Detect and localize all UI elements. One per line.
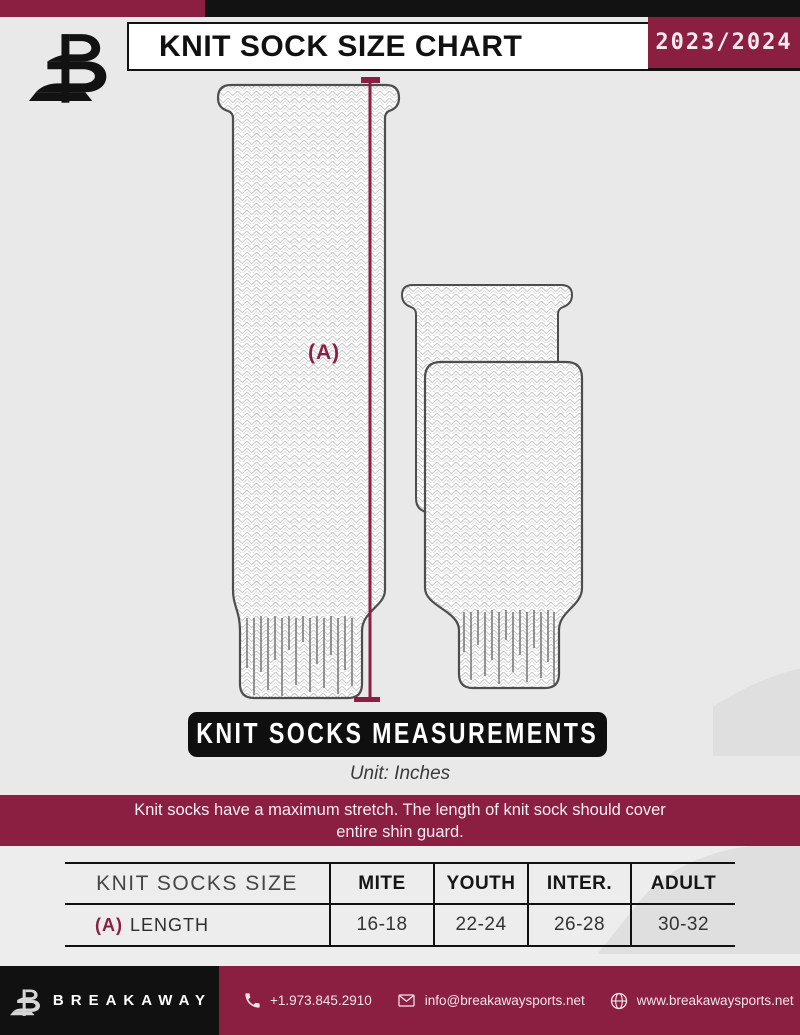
- footer-brand-block: BREAKAWAY: [0, 966, 219, 1035]
- unit-label: Unit: Inches: [0, 763, 800, 785]
- table-header-size: KNIT SOCKS SIZE: [65, 862, 329, 905]
- footer-contact-bar: +1.973.845.2910 info@breakawaysports.net…: [219, 966, 800, 1035]
- row-prefix-a: (A): [95, 915, 123, 936]
- top-strip-black: [205, 0, 800, 17]
- footer-breakaway-logo-icon: [7, 984, 41, 1018]
- sock-youth-illustration: [402, 285, 572, 512]
- mail-icon: [396, 991, 417, 1010]
- breakaway-logo-icon: [20, 20, 110, 108]
- globe-icon: [609, 991, 629, 1011]
- note-line-2: entire shin guard.: [336, 821, 464, 843]
- row-label-length: LENGTH: [130, 915, 209, 936]
- note-line-1: Knit socks have a maximum stretch. The l…: [134, 799, 666, 821]
- top-strip-maroon: [0, 0, 205, 17]
- stretch-note-banner: Knit socks have a maximum stretch. The l…: [0, 795, 800, 846]
- measurements-banner: KNIT SOCKS MEASUREMENTS: [188, 712, 607, 757]
- title-box: KNIT SOCK SIZE CHART: [127, 22, 648, 71]
- table-cell-youth: 22-24: [433, 905, 527, 947]
- size-table: KNIT SOCKS SIZE MITE YOUTH INTER. ADULT …: [65, 862, 735, 947]
- measurements-banner-title: KNIT SOCKS MEASUREMENTS: [197, 718, 599, 751]
- measurement-line-a: [354, 77, 380, 702]
- table-cell-mite: 16-18: [329, 905, 433, 947]
- season-box: 2023/2024: [648, 17, 800, 71]
- sock-large-illustration: [218, 85, 399, 698]
- season-label: 2023/2024: [655, 30, 792, 55]
- table-header-inter: INTER.: [527, 862, 630, 905]
- table-cell-inter: 26-28: [527, 905, 630, 947]
- footer-email[interactable]: info@breakawaysports.net: [396, 991, 585, 1010]
- footer-brand-name: BREAKAWAY: [53, 992, 212, 1009]
- table-header-adult: ADULT: [630, 862, 735, 905]
- footer-website-url: www.breakawaysports.net: [637, 993, 794, 1008]
- footer-phone[interactable]: +1.973.845.2910: [243, 991, 372, 1010]
- page-title: KNIT SOCK SIZE CHART: [159, 30, 522, 64]
- footer-phone-number: +1.973.845.2910: [270, 993, 372, 1008]
- measure-label-a: (A): [308, 341, 340, 365]
- knit-sock-size-chart-page: KNIT SOCK SIZE CHART 2023/2024: [0, 0, 800, 1035]
- table-cell-adult: 30-32: [630, 905, 735, 947]
- footer: BREAKAWAY +1.973.845.2910 info@breakaway…: [0, 966, 800, 1035]
- sock-adult-illustration: [425, 362, 582, 688]
- table-header-mite: MITE: [329, 862, 433, 905]
- table-header-youth: YOUTH: [433, 862, 527, 905]
- phone-icon: [243, 991, 262, 1010]
- footer-website[interactable]: www.breakawaysports.net: [609, 991, 794, 1011]
- footer-email-address: info@breakawaysports.net: [425, 993, 585, 1008]
- table-row-length-label: (A) LENGTH: [65, 905, 329, 947]
